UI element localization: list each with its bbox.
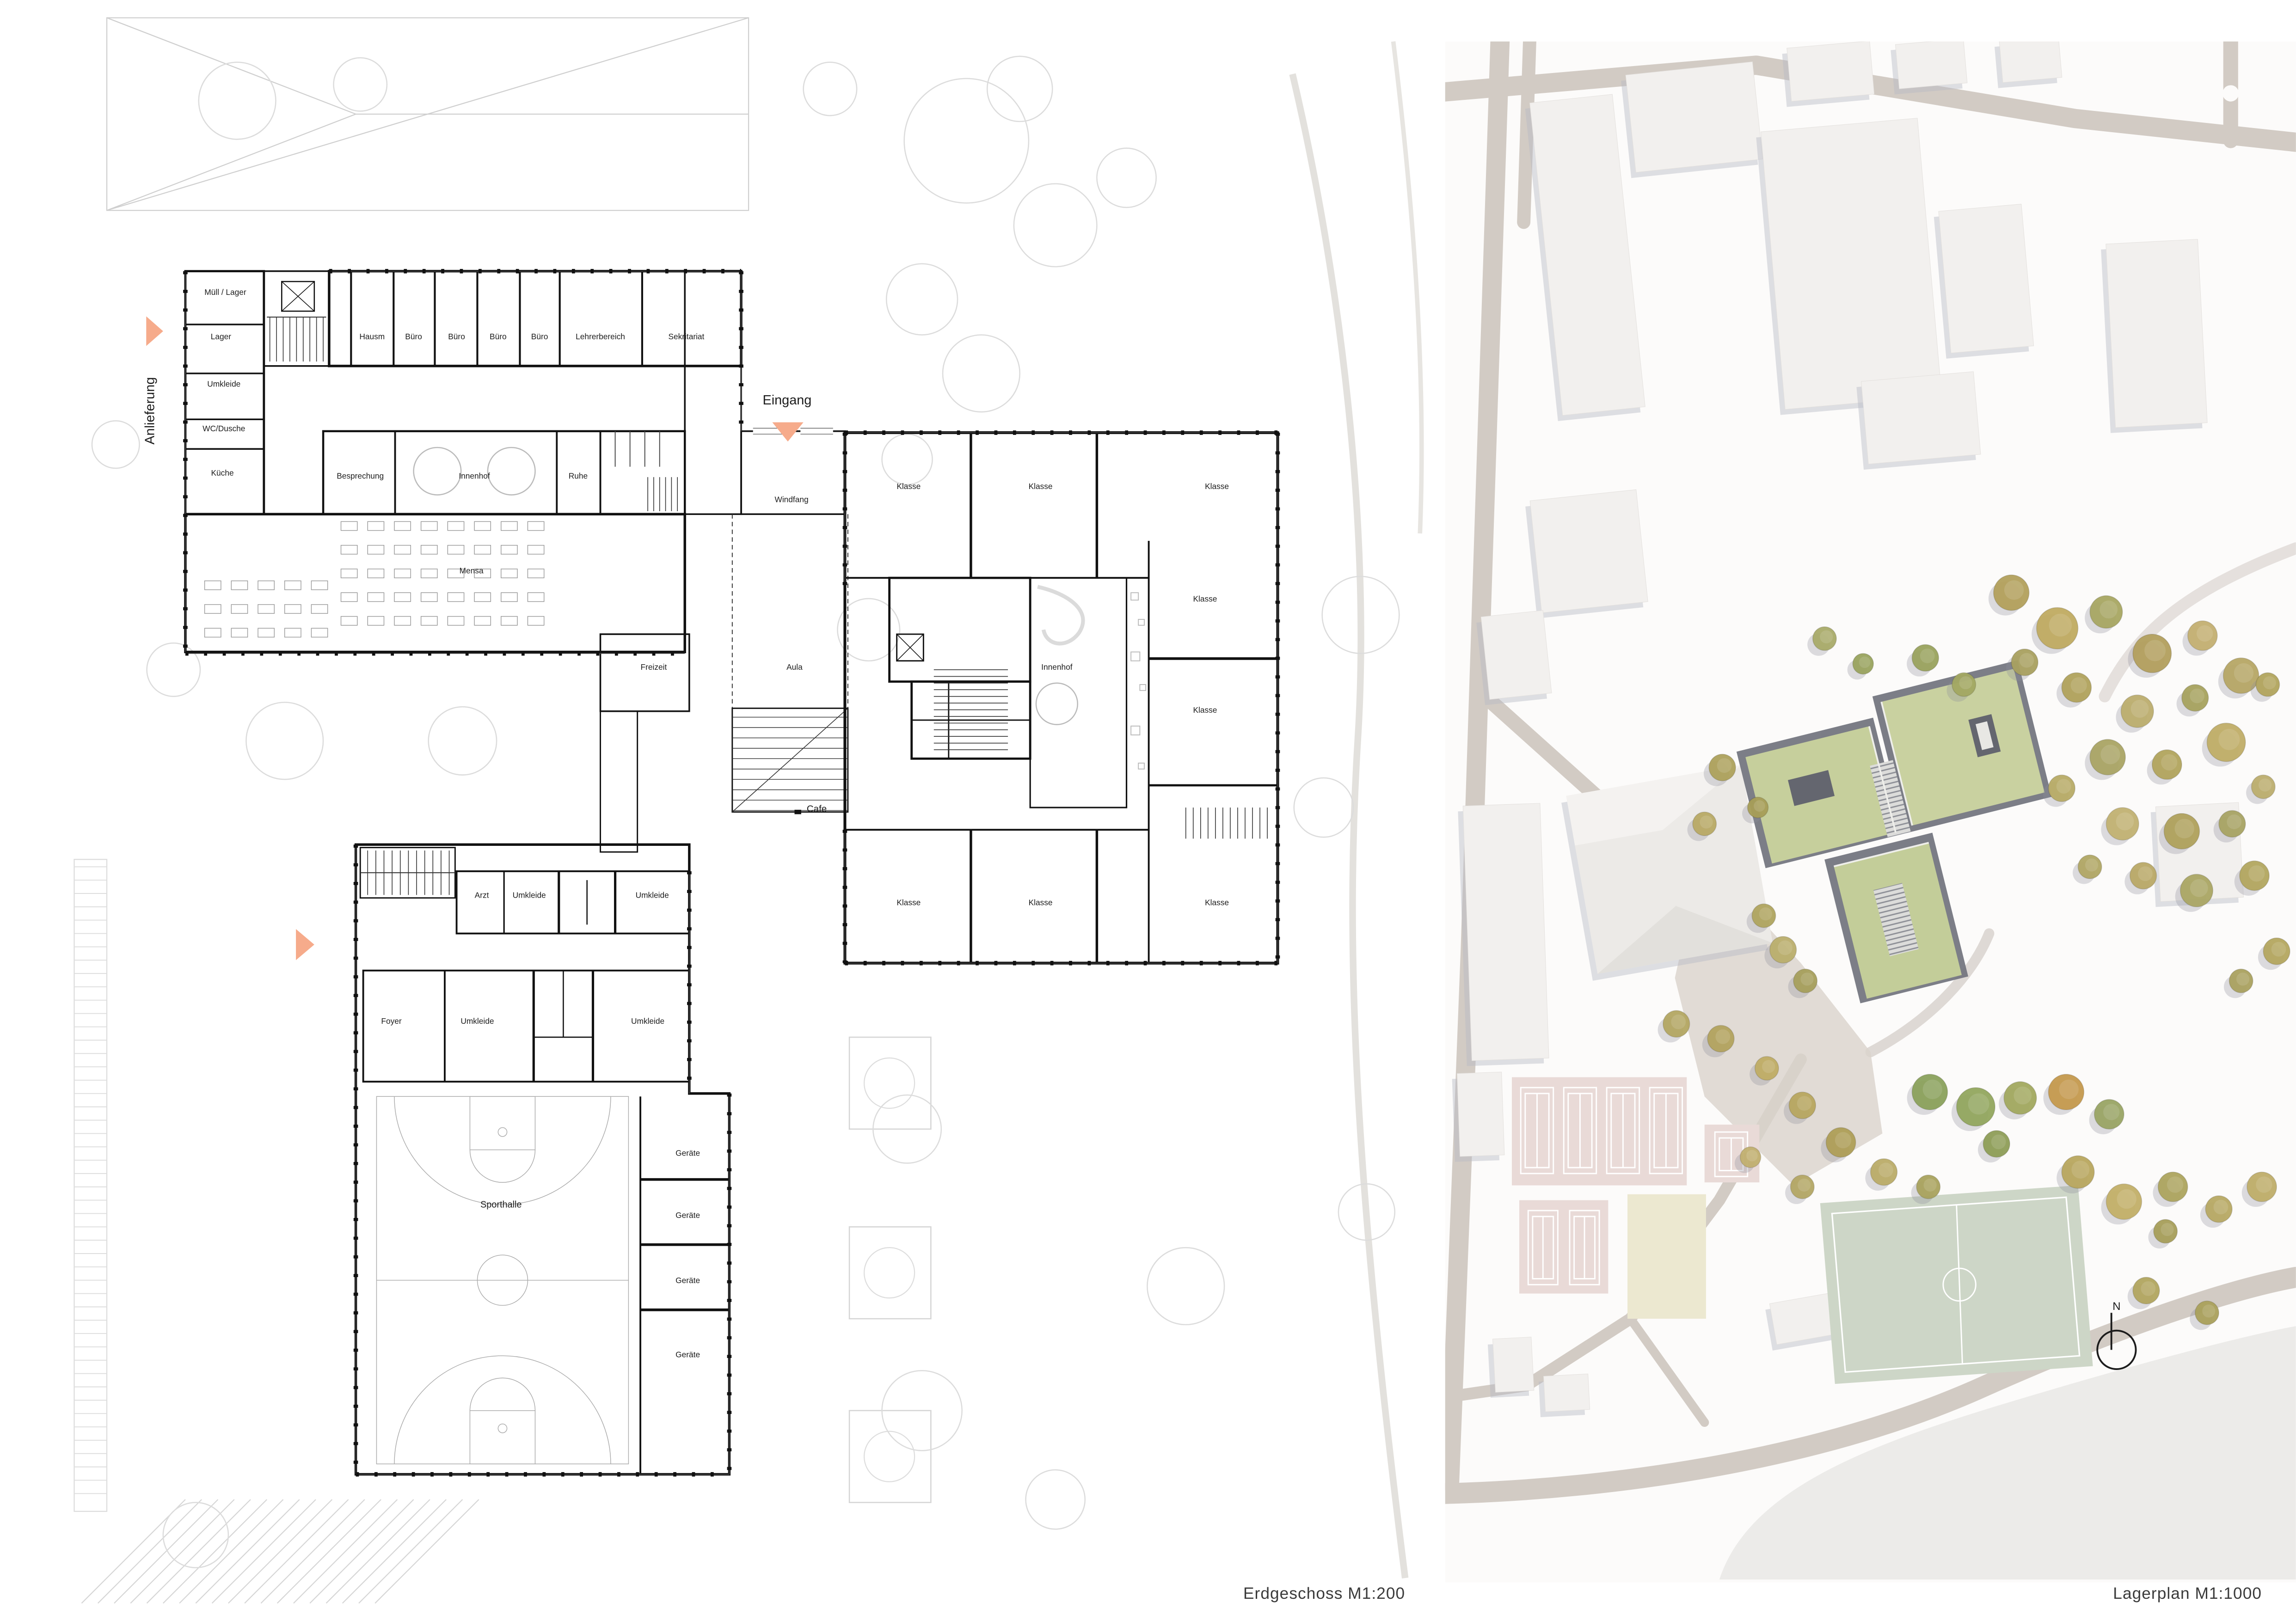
mensa-furniture	[205, 521, 544, 637]
room-label: Geräte	[675, 1148, 700, 1157]
site-building	[1890, 39, 1967, 95]
room-label: Mensa	[460, 566, 484, 575]
room-label: Aula	[786, 662, 803, 672]
room-label: Sekritariat	[668, 332, 704, 341]
room-label: Klasse	[1029, 482, 1053, 491]
room-label: Klasse	[896, 898, 921, 907]
architecture-sheet: Anlieferung Eingang Müll / LagerLagerUmk…	[0, 0, 2296, 1621]
site-building	[1621, 62, 1763, 178]
room-label: Innenhof	[459, 471, 490, 480]
site-plan-caption: Lagerplan M1:1000	[2113, 1584, 2262, 1603]
room-label: Geräte	[675, 1211, 700, 1220]
sand-court	[1627, 1194, 1706, 1319]
north-label: N	[2112, 1300, 2120, 1313]
room-label: Umkleide	[636, 891, 669, 900]
site-building	[1458, 803, 1549, 1066]
room-label: Klasse	[1205, 482, 1229, 491]
site-building	[1525, 489, 1648, 618]
floor-plan-walls	[185, 271, 1278, 1474]
site-building	[1452, 1072, 1504, 1162]
room-label: Küche	[211, 468, 234, 477]
room-label: Umkleide	[460, 1016, 494, 1026]
delivery-arrow-icon	[146, 316, 163, 346]
room-label: Klasse	[1029, 898, 1053, 907]
room-label: Büro	[448, 332, 465, 341]
eingang-label: Eingang	[762, 393, 811, 408]
room-label: Lager	[211, 332, 231, 341]
room-label: Klasse	[896, 482, 921, 491]
site-building	[1994, 36, 2063, 88]
anlieferung-label: Anlieferung	[143, 377, 158, 445]
site-building	[1538, 1374, 1590, 1417]
floor-plan: Anlieferung Eingang Müll / LagerLagerUmk…	[74, 18, 1421, 1603]
room-label: Besprechung	[337, 471, 384, 480]
room-label: Hausm	[359, 332, 385, 341]
basketball-court	[376, 1096, 628, 1464]
room-label: Klasse	[1193, 594, 1217, 604]
facade-combs	[185, 271, 1278, 1474]
room-label: Ruhe	[569, 471, 588, 480]
site-building	[1782, 41, 1875, 107]
site-building	[1856, 372, 1981, 470]
room-label: Sporthalle	[480, 1200, 522, 1210]
site-building	[1934, 204, 2034, 359]
room-label: Innenhof	[1041, 662, 1073, 672]
room-label: Lehrerbereich	[576, 332, 625, 341]
room-label: Büro	[405, 332, 422, 341]
sport-entrance-arrow-icon	[296, 929, 314, 960]
room-label: Klasse	[1193, 705, 1217, 715]
room-label: Cafe	[807, 804, 827, 814]
site-building	[1756, 118, 1942, 415]
room-label: Umkleide	[631, 1016, 664, 1026]
site-building	[1476, 611, 1552, 705]
room-label: Freizeit	[641, 662, 667, 672]
room-label: Arzt	[475, 891, 489, 900]
site-building	[2101, 239, 2208, 433]
room-label: Umkleide	[207, 379, 240, 389]
site-building	[1487, 1337, 1534, 1398]
room-label: Geräte	[675, 1276, 700, 1285]
room-label: Geräte	[675, 1350, 700, 1359]
room-label: Klasse	[1205, 898, 1229, 907]
room-label: Windfang	[774, 495, 808, 504]
soccer-field	[1820, 1186, 2093, 1384]
existing-hall	[1560, 765, 1774, 981]
room-label: Büro	[531, 332, 548, 341]
room-label: WC/Dusche	[203, 424, 245, 433]
entrance-arrows	[146, 316, 803, 960]
room-label: Müll / Lager	[204, 287, 246, 297]
room-label: Foyer	[381, 1016, 401, 1026]
room-label: Büro	[490, 332, 507, 341]
floor-plan-caption: Erdgeschoss M1:200	[1243, 1584, 1405, 1603]
roundabout	[2222, 85, 2239, 101]
room-label: Umkleide	[513, 891, 546, 900]
site-plan: N	[1445, 36, 2296, 1583]
